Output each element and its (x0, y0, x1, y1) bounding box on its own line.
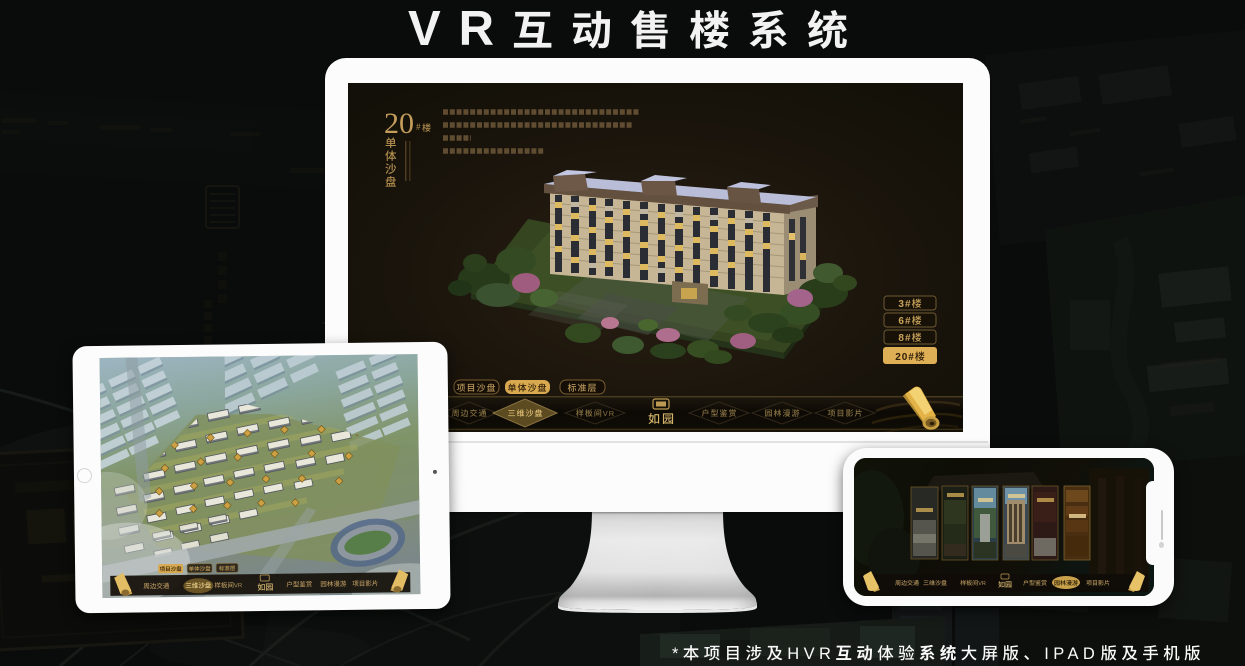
svg-text:*: * (672, 645, 683, 663)
svg-text:6#: 6# (898, 316, 911, 327)
svg-text:HVR: HVR (787, 645, 835, 663)
svg-text:VR: VR (603, 409, 615, 418)
svg-text:VR: VR (234, 583, 243, 589)
svg-text:VR: VR (978, 581, 986, 587)
svg-text:IPAD: IPAD (1044, 645, 1099, 663)
svg-text:8#: 8# (898, 333, 911, 344)
svg-text:#: # (416, 122, 421, 132)
svg-text:VR: VR (408, 2, 512, 56)
svg-text:3#: 3# (898, 299, 911, 310)
svg-text:20: 20 (384, 107, 414, 140)
svg-text:20#: 20# (895, 352, 915, 363)
